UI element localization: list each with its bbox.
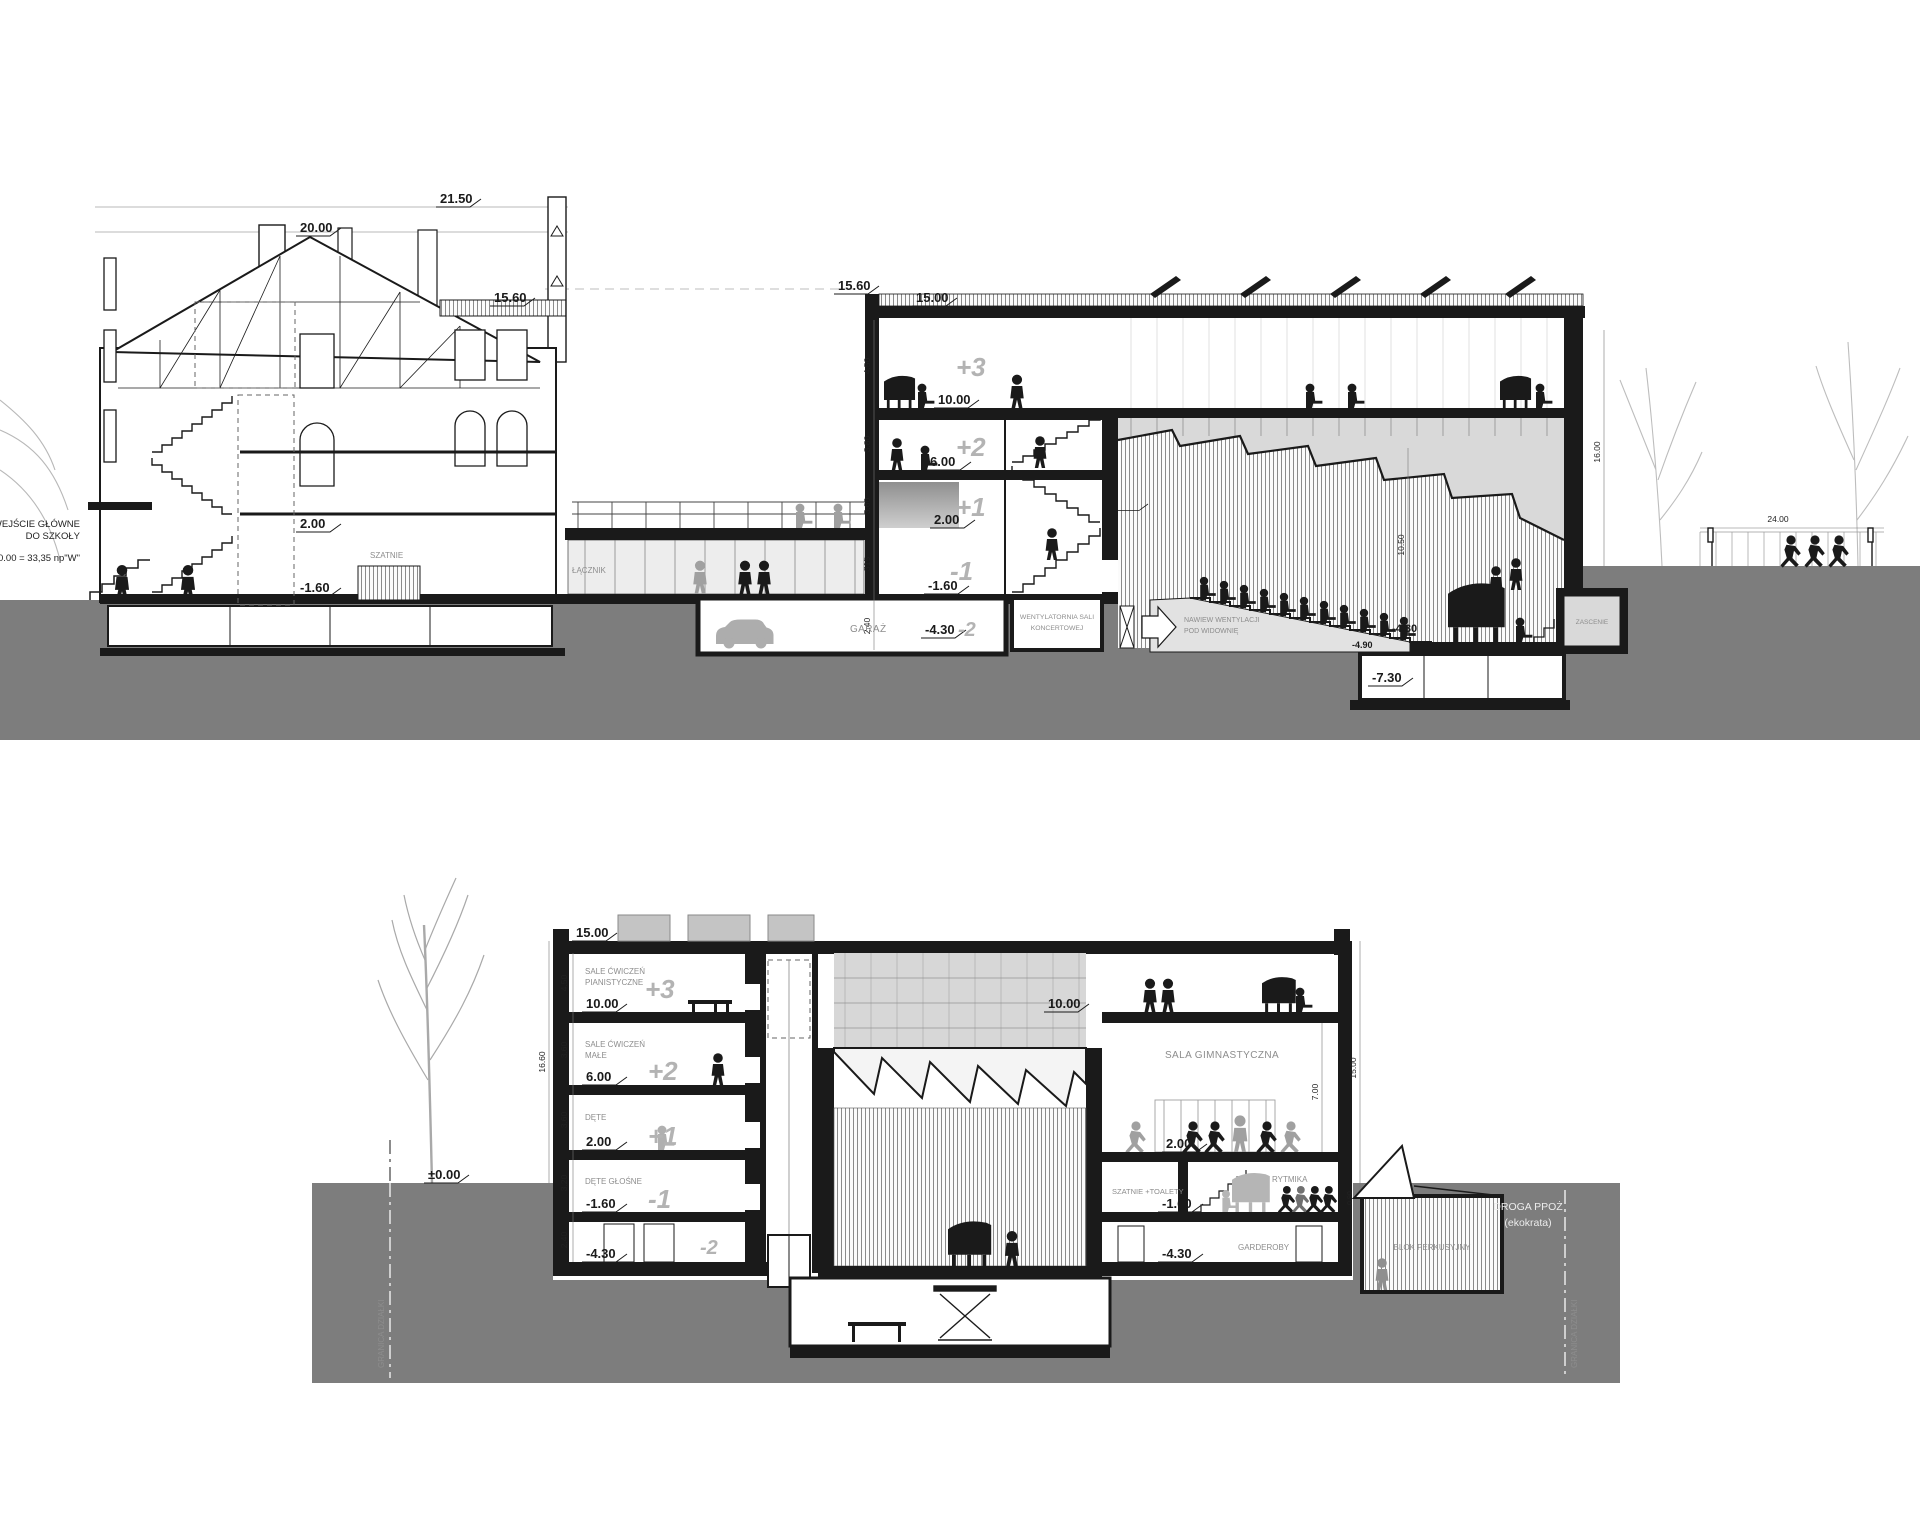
dim-3-60-a: 3.60: [559, 1041, 569, 1058]
site-label-granica-left: GRANICA DZIAŁKI: [377, 1300, 386, 1368]
level-15-60: 15.60: [834, 278, 879, 294]
person-silhouette: [834, 504, 851, 528]
sections-drawing: WEJŚCIE GŁÓWNE DO SZKOŁY 0.00 = 33,35 np…: [0, 0, 1920, 1528]
room-label-perkusja: BLOK PERKUSYJNY: [1394, 1243, 1472, 1252]
basketball-court: [1700, 528, 1884, 568]
stage-tower: [790, 953, 1110, 1358]
dim-24-00: 24.00: [1767, 514, 1789, 524]
new-building: [698, 276, 1628, 710]
room-label-lacznik: ŁĄCZNIK: [572, 566, 606, 575]
svg-text:-4.30: -4.30: [925, 622, 955, 637]
floor-tag-p3: +3: [956, 352, 986, 382]
dim-4-50: 4.50: [862, 357, 872, 374]
floor-tag-p1: +1: [956, 492, 986, 522]
ground-slab: [100, 594, 565, 604]
annex-skylight-wedge: [1354, 1146, 1414, 1198]
svg-text:21.50: 21.50: [440, 191, 473, 206]
dim-7-00: 7.00: [1310, 1083, 1320, 1100]
slab-6-00: [569, 1085, 745, 1095]
site-label-droga1: DROGA PPOŻ: [1493, 1200, 1563, 1213]
basement-slab: [100, 648, 565, 656]
svg-text:15.60: 15.60: [494, 290, 527, 305]
svg-text:2.00: 2.00: [1166, 1136, 1191, 1151]
room-label-went1: WENTYLATORNIA SALI: [1020, 614, 1094, 621]
stage-floor-slab: [818, 1266, 1102, 1278]
top-floor-glazing: [1130, 318, 1564, 408]
dim-15-00: 15.00: [1348, 1057, 1358, 1079]
svg-text:2.00: 2.00: [586, 1134, 611, 1149]
ceiling-hangers: [1118, 418, 1564, 436]
hall-entry-opening: [1102, 560, 1118, 592]
person-silhouette: [1828, 535, 1848, 567]
slab-m4-30-right: [1102, 1262, 1350, 1276]
roof-slab: [555, 941, 1350, 954]
proscenium-wall: [1086, 1048, 1102, 1266]
svg-text:6.00: 6.00: [586, 1069, 611, 1084]
percussion-annex: [1354, 1146, 1502, 1292]
slab-10-00-right: [1102, 1012, 1338, 1023]
dim-3-20: 3.20: [559, 1174, 569, 1191]
slab-6-00: [879, 470, 1105, 480]
understage: [790, 1278, 1110, 1358]
grand-piano-silhouette: [948, 1221, 991, 1266]
room-label-went2: KONCERTOWEJ: [1031, 625, 1084, 632]
grand-piano-silhouette: [884, 376, 915, 408]
svg-text:10.00: 10.00: [938, 392, 971, 407]
svg-text:10.00: 10.00: [586, 996, 619, 1011]
level-20-00: 20.00: [296, 220, 341, 236]
dim-2-40-b: 2.40: [559, 1231, 569, 1248]
datum-note: 0.00 = 33,35 np"W": [0, 553, 80, 564]
room-label-szatnie-b: SZATNIE +TOALETY: [1112, 1187, 1184, 1196]
svg-text:-7.30: -7.30: [1372, 670, 1402, 685]
dim-3-15: 315: [862, 557, 872, 571]
slab-2-00-right: [1102, 1152, 1338, 1162]
room-label-r3b: PIANISTYCZNE: [585, 978, 643, 987]
room-label-garderoby: GARDEROBY: [1238, 1243, 1290, 1252]
svg-text:-1.60: -1.60: [1162, 1196, 1192, 1211]
proscenium-wall: [818, 1048, 834, 1266]
dim-4-50-b: 4.50: [559, 974, 569, 991]
dim-16-00: 16.00: [1592, 441, 1602, 463]
room-label-naw2: POD WIDOWNIĘ: [1184, 628, 1239, 635]
floor-tag-m2: -2: [700, 1237, 718, 1259]
floor-tag-m1: -1: [648, 1184, 671, 1214]
floor-tag-m2: -2: [958, 619, 976, 641]
grand-piano-silhouette: [1262, 977, 1296, 1012]
svg-text:-1.60: -1.60: [586, 1196, 616, 1211]
basketball-hoop: [1708, 528, 1713, 566]
person-silhouette: [1804, 535, 1824, 567]
svg-text:15.00: 15.00: [916, 290, 949, 305]
svg-text:20.00: 20.00: [300, 220, 333, 235]
room-label-naw1: NAWIEW WENTYLACJI: [1184, 617, 1260, 624]
dim-10-50: 10.50: [1396, 534, 1406, 556]
site-label-droga2: (ekokrata): [1504, 1217, 1551, 1229]
svg-text:2.00: 2.00: [300, 516, 325, 531]
svg-text:-4.30: -4.30: [586, 1246, 616, 1261]
roof-skylight-band: [879, 294, 1583, 306]
level-21-50: 21.50: [436, 191, 481, 207]
room-label-zascenie: ZASCENIE: [1576, 619, 1609, 626]
room-label-r2b: MAŁE: [585, 1051, 607, 1060]
svg-text:-4.30: -4.30: [1162, 1246, 1192, 1261]
grand-piano-silhouette: [1232, 1173, 1270, 1212]
entrance-note-line1: WEJŚCIE GŁÓWNE: [0, 518, 80, 530]
slab-2-00: [569, 1150, 745, 1160]
site-label-granica-right: GRANICA DZIAŁKI: [1570, 1300, 1579, 1368]
grand-piano-silhouette: [1448, 583, 1505, 642]
floor-tag-p2: +2: [956, 432, 986, 462]
dim-3-80: 3.80: [862, 435, 872, 452]
east-wall: [1564, 306, 1583, 592]
room-label-szatnie: SZATNIE: [370, 551, 403, 560]
stage-slab: [1410, 642, 1564, 652]
slab-10-00: [569, 1012, 745, 1023]
tower-spire: [548, 197, 566, 362]
room-label-rytmika: RYTMIKA: [1272, 1175, 1308, 1184]
roof-slab: [865, 306, 1585, 318]
floor-tag-p3: +3: [645, 974, 675, 1004]
room-label-r3a: SALE ĆWICZEŃ: [585, 967, 645, 976]
svg-text:10.00: 10.00: [1048, 996, 1081, 1011]
architectural-sections-sheet: WEJŚCIE GŁÓWNE DO SZKOŁY 0.00 = 33,35 np…: [0, 0, 1920, 1528]
floor-tag-p2: +2: [648, 1056, 678, 1086]
ventilation-room: [1012, 598, 1102, 650]
svg-text:6.00: 6.00: [930, 454, 955, 469]
level-m4-90: -4.90: [1352, 640, 1373, 650]
svg-text:±0.00: ±0.00: [428, 1167, 460, 1182]
dim-3-60-b: 3.60: [559, 1111, 569, 1128]
svg-text:-4.30: -4.30: [1392, 623, 1417, 635]
entrance-note-line2: DO SZKOŁY: [26, 531, 81, 542]
dim-16-60: 16.60: [537, 1051, 547, 1073]
floor-tag-m1: -1: [950, 556, 973, 586]
svg-text:15.60: 15.60: [838, 278, 871, 293]
top-section-drawing: WEJŚCIE GŁÓWNE DO SZKOŁY 0.00 = 33,35 np…: [0, 191, 1920, 740]
grand-piano-silhouette: [1500, 376, 1531, 408]
room-label-r2a: SALE ĆWICZEŃ: [585, 1040, 645, 1049]
room-label-garaz: GARAŻ: [850, 622, 886, 635]
entrance-canopy: [88, 502, 152, 510]
tree: [378, 878, 484, 1183]
person-silhouette: [796, 504, 813, 528]
basketball-hoop: [1868, 528, 1873, 566]
bottom-section-drawing: GRANICA DZIAŁKI GRANICA DZIAŁKI ±0.00 15…: [312, 878, 1620, 1383]
level-zero: ±0.00: [424, 1167, 469, 1183]
rtu-unit: [618, 915, 814, 941]
room-label-rm1: DĘTE GŁOŚNE: [585, 1177, 642, 1186]
szatnie-grille: [358, 566, 420, 600]
room-label-gym: SALA GIMNASTYCZNA: [1165, 1050, 1279, 1061]
svg-text:-1.60: -1.60: [300, 580, 330, 595]
slab-m1-60-right: [1102, 1212, 1338, 1222]
floor-tag-p1: +1: [648, 1121, 678, 1151]
dim-3-60: 3.60: [862, 497, 872, 514]
room-label-r1: DĘTE: [585, 1113, 606, 1122]
svg-text:15.00: 15.00: [576, 925, 609, 940]
person-silhouette: [1780, 535, 1800, 567]
